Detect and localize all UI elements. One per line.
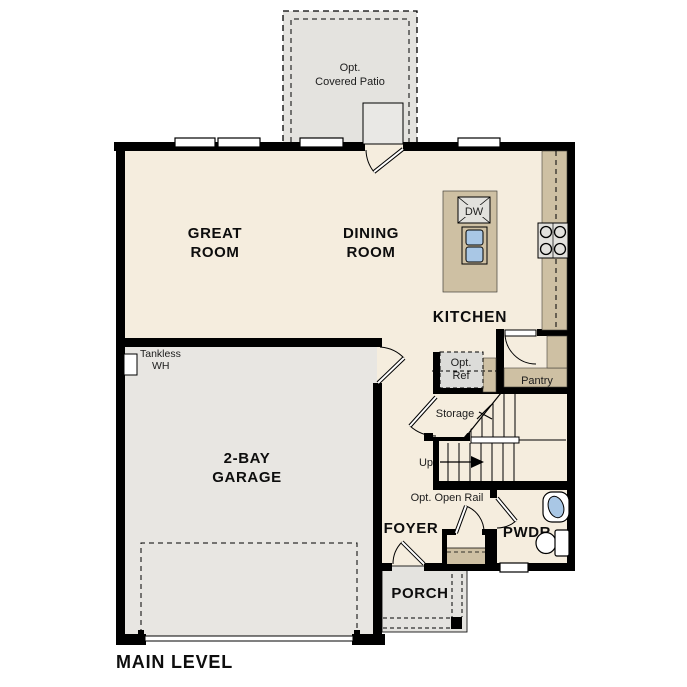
floorplan-svg: Opt. Covered Patio PORCH [0,0,687,687]
floorplan-page: Opt. Covered Patio PORCH [0,0,687,687]
range-icon [538,223,568,258]
wall [490,490,497,498]
porch-post [451,617,462,629]
opt-ref-label-line1: Opt. [451,357,472,369]
window [300,138,343,147]
great-room-label-line2: ROOM [190,244,239,261]
closet-shelf [447,548,485,564]
patio-label-line2: Covered Patio [315,76,385,88]
storage-label: Storage [436,408,475,420]
window [458,138,500,147]
wall [496,329,504,336]
pantry-shelf [547,336,567,368]
page-title: MAIN LEVEL [116,652,233,672]
pantry-label: Pantry [521,375,553,387]
stair-rail [471,437,519,443]
dining-room-label-line1: DINING [343,225,399,242]
wall [442,529,456,535]
wall [376,563,392,571]
window [218,138,260,147]
tankless-water-heater-icon [124,354,137,375]
stairs-up-label: Up [419,457,433,469]
garage-floor [121,342,377,641]
patio-label-line1: Opt. [340,62,361,74]
wall [490,529,497,565]
porch: PORCH [382,566,467,632]
wall [373,383,382,634]
wall [528,563,575,571]
wall [116,338,382,347]
dishwasher-icon: DW [458,197,490,223]
tankless-label-line2: WH [152,360,170,372]
garage-door-corner [354,630,360,636]
counter [483,358,496,392]
opt-ref: Opt. Ref [432,352,496,392]
garage-label-line2: GARAGE [212,469,281,486]
tankless-label-line1: Tankless [140,348,181,360]
kitchen-island: DW [443,191,497,292]
porch-label: PORCH [391,585,448,602]
window [175,138,215,147]
vanity-sink-icon [543,492,569,522]
window [500,563,528,572]
wall [116,142,125,645]
patio-stoop [363,103,403,144]
kitchen-label: KITCHEN [433,309,508,326]
dishwasher-label: DW [465,206,484,218]
foyer-label: FOYER [384,520,439,537]
opt-ref-label-line2: Ref [452,370,470,382]
garage-label-line1: 2-BAY [224,450,271,467]
wall [496,335,504,387]
great-room-label-line1: GREAT [188,225,242,242]
door-leaf [505,330,536,336]
wall [433,481,575,490]
garage-door-corner [138,630,144,636]
open-rail-label: Opt. Open Rail [411,492,484,504]
wall [424,563,500,571]
dining-room-label-line2: ROOM [346,244,395,261]
garage-door-header [145,636,353,641]
wall [482,529,490,535]
